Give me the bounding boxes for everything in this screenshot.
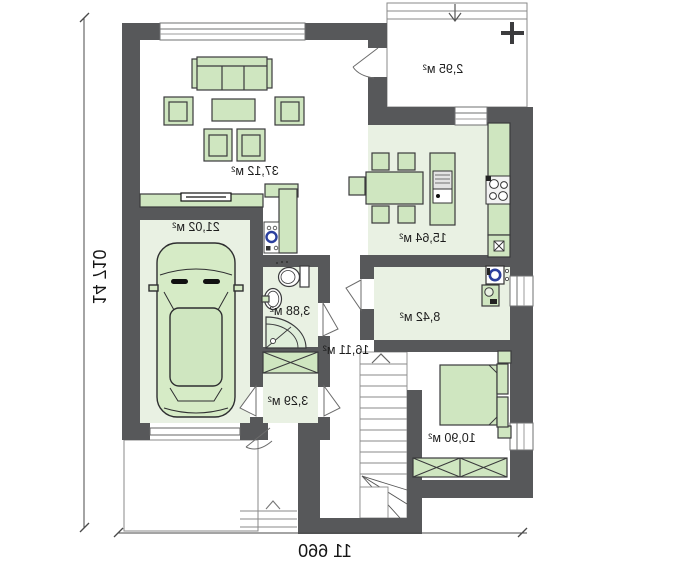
entry-porch [387, 3, 527, 107]
room-label-bedroom: 10,90 м² [428, 432, 476, 445]
tv-sideboard [140, 193, 263, 207]
double-bed [440, 364, 508, 427]
car-mirror-right [234, 285, 243, 291]
utility-door [346, 280, 361, 310]
room-label-garage: 21,02 м² [172, 221, 220, 234]
room-label-living: 37,12 м² [231, 165, 279, 178]
driveway [124, 440, 258, 531]
dining-table [366, 172, 423, 204]
garage-door [150, 428, 240, 435]
closet-wardrobe [263, 352, 318, 373]
cooktop [486, 176, 510, 204]
boiler-fireplace-unit [264, 184, 298, 253]
side-chair-right [237, 129, 265, 161]
boiler-dial-icon [267, 232, 277, 242]
armchair-left [164, 97, 193, 125]
nightstand [498, 351, 511, 363]
armchair-right [275, 97, 304, 125]
bedroom-window [510, 423, 533, 450]
sofa [192, 57, 272, 90]
faucet-icon [436, 194, 440, 198]
water-heater [482, 285, 499, 306]
car [149, 243, 243, 417]
front-door [353, 48, 378, 78]
nightstand [498, 426, 511, 438]
dining-chair [372, 206, 389, 223]
entry-arrow-icon [266, 501, 280, 509]
dimension-label-depth: 14 710 [90, 249, 108, 304]
bedroom-furniture [413, 351, 511, 477]
kitchen-island [430, 153, 455, 225]
staircase [360, 352, 407, 518]
kitchen-sink-cabinet [488, 235, 510, 257]
room-label-hall: 16,11 м² [323, 344, 370, 357]
living-room-window [160, 23, 305, 40]
closet-door-hall [324, 386, 340, 416]
side-chair-left [204, 129, 232, 161]
room-label-utility: 8,42 м² [400, 311, 441, 324]
room-label-kitchen: 15,64 м² [399, 232, 447, 245]
room-label-bathroom: 3,88 м² [270, 305, 311, 318]
dining-chair [372, 153, 389, 170]
bathroom-door [323, 303, 338, 336]
bedroom-wardrobe [413, 458, 507, 477]
dimension-line-left [80, 13, 89, 532]
dimension-label-width: 11 660 [298, 542, 352, 560]
room-label-porch: 2,95 м² [423, 63, 464, 76]
floor-plan-canvas: 37,12 м² 21,02 м² 15,64 м² 2,95 м² 3,88 … [0, 0, 700, 575]
car-mirror-left [149, 285, 158, 291]
utility-window [510, 276, 533, 306]
coffee-table [212, 99, 255, 121]
island-sink [433, 189, 452, 203]
kitchen-window [455, 107, 487, 125]
room-label-closet: 3,29 м² [268, 395, 309, 408]
dining-chair [398, 206, 415, 223]
dining-chair [349, 177, 365, 195]
dining-chair [398, 153, 415, 170]
